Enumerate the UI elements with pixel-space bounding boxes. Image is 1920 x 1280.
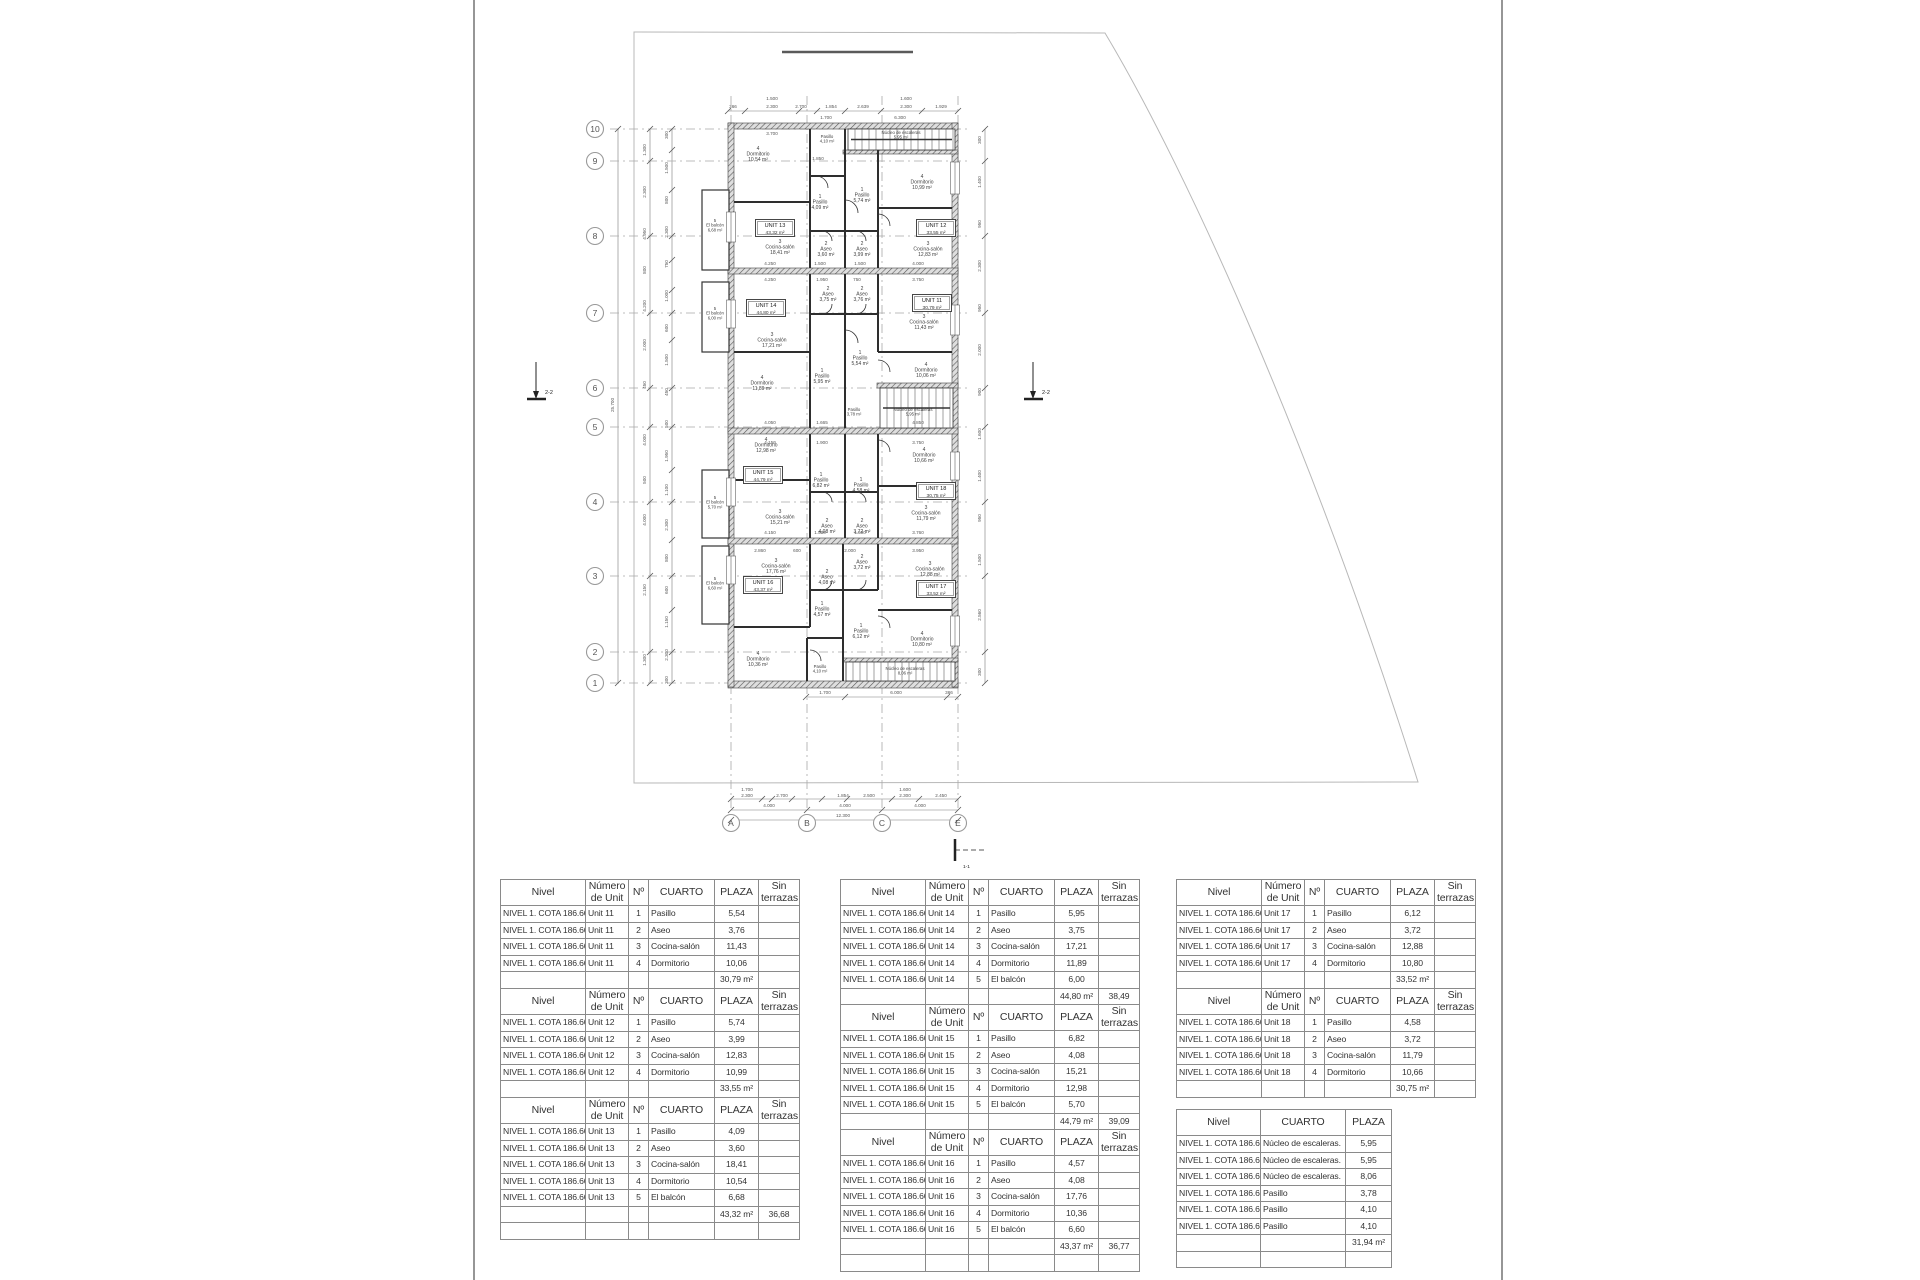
dim-label: 900 [977,388,982,396]
dim-label: 2.000 [642,339,647,351]
column-header: CUARTO [1261,1110,1346,1136]
dim-label: 2.450 [935,793,947,798]
room-label: 2Aseo4,08 m² [819,569,836,586]
section-label: 1-1 [963,864,970,870]
column-header: PLAZA [1055,880,1099,906]
grid-bubble-label: 5 [593,422,598,432]
dim-label: 950 [977,304,982,312]
table-row: NIVEL 1. COTA 186.60Unit 171Pasillo6,12 [1177,906,1476,923]
dim-label: 1.854 [837,793,849,798]
dim-label: 4.000 [763,803,775,808]
column-header: Nº [969,1005,989,1031]
table-row: NIVEL 1. COTA 186.60Unit 145El balcón6,0… [841,972,1140,989]
dim-label: 2.300 [977,260,982,272]
dim-label: 1.500 [814,261,826,266]
column-header: CUARTO [989,1130,1055,1156]
grid-bubble-label: 2 [593,647,598,657]
column-header: Nº [969,1130,989,1156]
dimension-chains [618,111,985,820]
table-row: NIVEL 1. COTA 186.60Unit 143Cocina-salón… [841,939,1140,956]
dim-label: 2.000 [977,344,982,356]
dim-label: 500 [642,476,647,484]
table-row: NIVEL 1. COTA 186.60Unit 152Aseo4,08 [841,1047,1140,1064]
unit-table-unit-18: NivelNúmero de UnitNºCUARTOPLAZASin terr… [1176,988,1476,1098]
column-header: CUARTO [649,880,715,906]
structural-grid: 10987654321ABCE [587,96,969,832]
column-header: CUARTO [649,989,715,1015]
dim-label: 950 [977,220,982,228]
dim-label: 2.000 [844,548,856,553]
dim-label: 4.150 [764,530,776,535]
room-label: 3Cocina-salón11,79 m² [911,505,940,522]
dim-label: 4.250 [764,277,776,282]
dim-label: 2.300 [766,104,778,109]
room-label: 4Dormitorio10,36 m² [746,651,769,668]
column-header: CUARTO [649,1098,715,1124]
column-header: PLAZA [715,880,759,906]
unit-tag-area: 43,37 m² [754,587,773,593]
table-row [1177,1251,1392,1268]
table-row: NIVEL 1. COTA 186.60Núcleo de escaleras.… [1177,1136,1392,1153]
table-row: NIVEL 1. COTA 186.60Unit 122Aseo3,99 [501,1031,800,1048]
column-header: Sin terrazas [759,880,800,906]
dim-label: 300 [664,131,669,139]
table-row: NIVEL 1. COTA 186.60Unit 154Dormitorio12… [841,1080,1140,1097]
dim-label: 2.639 [857,104,869,109]
room-label: 3Cocina-salón12,83 m² [913,241,942,258]
dim-label: 1.929 [935,104,947,109]
column-header: Nivel [501,989,586,1015]
column-header: CUARTO [1325,880,1391,906]
room-label: 1Pasillo5,54 m² [852,350,869,367]
room-label: 2Aseo3,72 m² [854,554,871,571]
grid-bubble-label: B [804,818,810,828]
dim-label: 450 [642,381,647,389]
column-header: CUARTO [1325,989,1391,1015]
room-label: 3Cocina-salón17,21 m² [757,332,786,349]
dim-label: 2.700 [776,793,788,798]
table-row: NIVEL 1. COTA 186.60Unit 113Cocina-salón… [501,939,800,956]
column-header: Sin terrazas [1099,880,1140,906]
dim-label: 600 [793,548,801,553]
unit-tag-name: UNIT 18 [926,486,947,492]
section-label: 2-2 [1042,390,1050,396]
room-label: 4Dormitorio10,80 m² [910,631,933,648]
room-label: 1Pasillo4,58 m² [853,477,870,494]
dim-label: 3.750 [912,440,924,445]
room-label: 2Aseo3,75 m² [820,286,837,303]
dim-label: 3.750 [912,277,924,282]
column-header: Nivel [501,1098,586,1124]
table-row: 43,32 m²36,68 [501,1206,800,1223]
dim-label: 300 [977,136,982,144]
dim-label: 3.950 [912,548,924,553]
unit-table-unit-11: NivelNúmero de UnitNºCUARTOPLAZASin terr… [500,879,800,989]
dim-label: 750 [853,277,861,282]
column-header: Nº [629,880,649,906]
dim-label: 1.150 [664,616,669,628]
dim-label: 6.000 [890,690,902,695]
column-header: Nivel [841,1130,926,1156]
dim-label: 2.500 [863,793,875,798]
column-header: PLAZA [1055,1130,1099,1156]
table-row: NIVEL 1. COTA 186.60Pasillo4,10 [1177,1202,1392,1219]
dim-label: 450 [664,388,669,396]
building [702,123,960,688]
unit-tag-name: UNIT 11 [922,298,942,304]
grid-bubble-label: C [879,818,885,828]
column-header: Nivel [1177,880,1262,906]
dim-label: 2.150 [642,584,647,596]
table-row: NIVEL 1. COTA 186.60Unit 141Pasillo5,95 [841,906,1140,923]
table-row: NIVEL 1. COTA 186.60Unit 153Cocina-salón… [841,1064,1140,1081]
column-header: Sin terrazas [1099,1130,1140,1156]
dim-label: 2.300 [900,104,912,109]
section-markers: 2-2 2-2 1-1 [527,362,1050,870]
table-row: NIVEL 1. COTA 186.60Unit 184Dormitorio10… [1177,1064,1476,1081]
dim-label: 800 [664,196,669,204]
unit-tag-area: 33,55 m² [927,230,946,236]
grid-bubble-label: 7 [593,308,598,318]
column-header: PLAZA [1055,1005,1099,1031]
dim-label: 2.860 [754,548,766,553]
unit-table-unit-17: NivelNúmero de UnitNºCUARTOPLAZASin terr… [1176,879,1476,989]
column-header: Nivel [1177,1110,1261,1136]
column-header: Nivel [841,880,926,906]
column-header: PLAZA [1391,989,1435,1015]
dim-label: 800 [642,266,647,274]
column-header: Número de Unit [1262,880,1305,906]
balconies [702,190,729,624]
table-row: NIVEL 1. COTA 186.60Unit 132Aseo3,60 [501,1140,800,1157]
dim-label: 4.000 [642,434,647,446]
room-label: 3Cocina-salón17,76 m² [761,558,790,575]
dim-label: 2.300 [664,649,669,661]
dim-label: 1.854 [825,104,837,109]
unit-table-unit-13: NivelNúmero de UnitNºCUARTOPLAZASin terr… [500,1097,800,1240]
column-header: Nº [1305,880,1325,906]
grid-bubble-label: 1 [593,678,598,688]
dim-label: 1.500 [766,96,778,101]
dim-label: 2.300 [899,793,911,798]
column-header: Número de Unit [586,989,629,1015]
room-label: 3Cocina-salón12,88 m² [915,561,944,578]
dim-label: 2.300 [664,519,669,531]
room-label: 2Aseo4,08 m² [819,518,836,535]
unit-tag-name: UNIT 13 [765,223,786,229]
column-header: Número de Unit [586,880,629,906]
dim-label: 3.700 [766,131,778,136]
table-row: NIVEL 1. COTA 186.60Unit 162Aseo4,08 [841,1172,1140,1189]
dim-label: 300 [664,676,669,684]
unit-tag-name: UNIT 15 [753,470,774,476]
dim-label: 12.300 [836,813,850,818]
dim-label: 1.600 [977,428,982,440]
grid-bubble-label: 8 [593,231,598,241]
unit-tag-name: UNIT 12 [926,223,947,229]
unit-table-unit-15: NivelNúmero de UnitNºCUARTOPLAZASin terr… [840,1004,1140,1130]
table-row: NIVEL 1. COTA 186.60Unit 133Cocina-salón… [501,1157,800,1174]
column-header: Sin terrazas [759,1098,800,1124]
dim-label: 1.500 [854,261,866,266]
room-label: 1Pasillo6,82 m² [813,472,830,489]
table-row: NIVEL 1. COTA 186.60Unit 131Pasillo4,09 [501,1124,800,1141]
room-label: 2Aseo3,99 m² [854,241,871,258]
table-row: NIVEL 1. COTA 186.60Unit 163Cocina-salón… [841,1189,1140,1206]
table-row: NIVEL 1. COTA 186.60Unit 111Pasillo5,54 [501,906,800,923]
table-row: 43,37 m²36,77 [841,1238,1140,1255]
column-header: PLAZA [715,1098,759,1124]
dim-label: 6.300 [894,115,906,120]
table-row: NIVEL 1. COTA 186.60Unit 161Pasillo4,57 [841,1156,1140,1173]
dim-label: 4.000 [914,803,926,808]
dim-label: 1.500 [977,554,982,566]
section-marker-2-2-left: 2-2 [527,362,553,399]
unit-tag-area: 44,79 m² [754,477,773,483]
column-header: Nivel [1177,989,1262,1015]
staircases [846,129,955,681]
dim-label: 1.500 [664,162,669,174]
dim-label: 1.400 [977,176,982,188]
room-label: 3Cocina-salón18,41 m² [765,239,794,256]
unit-tag-name: UNIT 16 [753,580,774,586]
dim-label: 25.700 [610,398,615,412]
table-row: NIVEL 1. COTA 186.60Unit 121Pasillo5,74 [501,1015,800,1032]
table-row [501,1223,800,1240]
dim-label: 3.760 [912,530,924,535]
room-label: Pasillo3,78 m² [847,407,862,417]
dim-label: 4.000 [642,514,647,526]
table-row: NIVEL 1. COTA 186.60Unit 165El balcón6,6… [841,1222,1140,1239]
room-label: 4Dormitorio10,66 m² [912,447,935,464]
dim-label: 1.300 [642,654,647,666]
dim-label: 4.000 [839,803,851,808]
table-row: 44,79 m²39,09 [841,1113,1140,1130]
table-row: NIVEL 1. COTA 186.60Núcleo de escaleras.… [1177,1152,1392,1169]
table-row: NIVEL 1. COTA 186.60Unit 135El balcón6,6… [501,1190,800,1207]
dim-label: 1.700 [741,787,753,792]
unit-table-unit-16: NivelNúmero de UnitNºCUARTOPLAZASin terr… [840,1129,1140,1272]
table-row: NIVEL 1. COTA 186.60Pasillo3,78 [1177,1185,1392,1202]
room-label: 1Pasillo5,95 m² [814,368,831,385]
table-row: NIVEL 1. COTA 186.60Unit 172Aseo3,72 [1177,922,1476,939]
column-header: PLAZA [715,989,759,1015]
column-header: Nivel [501,880,586,906]
column-header: Número de Unit [926,1130,969,1156]
column-header: Número de Unit [586,1098,629,1124]
room-label: 1Pasillo6,12 m² [853,623,870,640]
table-row: NIVEL 1. COTA 186.60Unit 181Pasillo4,58 [1177,1015,1476,1032]
grid-bubble-label: 10 [590,124,600,134]
section-marker-1-1-bottom: 1-1 [955,839,985,870]
grid-bubble-label: 3 [593,571,598,581]
dim-label: 4.850 [912,420,924,425]
dim-label: 600 [664,324,669,332]
dim-label: 300 [977,668,982,676]
column-header: Sin terrazas [759,989,800,1015]
dim-label: 4.250 [764,261,776,266]
grid-bubble-label: 9 [593,156,598,166]
room-label: Pasillo4,10 m² [813,664,828,674]
dim-label: 4.050 [764,420,776,425]
column-header: Número de Unit [926,880,969,906]
unit-tag-area: 43,32 m² [766,230,785,236]
table-row: NIVEL 1. COTA 186.60Pasillo4,10 [1177,1218,1392,1235]
column-header: Nº [629,989,649,1015]
room-label: 3Cocina-salón15,21 m² [765,509,794,526]
dim-label: 750 [664,260,669,268]
room-label: 1Pasillo4,57 m² [814,601,831,618]
dim-label: 4.200 [642,300,647,312]
room-label: 2Aseo3,72 m² [854,518,871,535]
unit-tag-name: UNIT 14 [756,303,777,309]
table-row: NIVEL 1. COTA 186.60Unit 183Cocina-salón… [1177,1048,1476,1065]
table-row: 31,94 m² [1177,1235,1392,1252]
room-label: 1Pasillo4,09 m² [812,194,829,211]
dim-label: 2.560 [977,609,982,621]
table-row: NIVEL 1. COTA 186.60Unit 123Cocina-salón… [501,1048,800,1065]
table-row: NIVEL 1. COTA 186.60Unit 174Dormitorio10… [1177,955,1476,972]
dim-label: 600 [664,586,669,594]
dim-label: 800 [664,554,669,562]
dim-label: 2.300 [642,186,647,198]
column-header: Sin terrazas [1099,1005,1140,1031]
room-label: 3Cocina-salón11,43 m² [909,314,938,331]
column-header: CUARTO [989,1005,1055,1031]
column-header: PLAZA [1346,1110,1392,1136]
dim-label: 1.950 [816,277,828,282]
room-label: 4Dormitorio10,99 m² [910,174,933,191]
dim-label: 1.100 [664,484,669,496]
grid-bubble-label: 4 [593,497,598,507]
dim-label: 4.000 [912,261,924,266]
dim-label: 4.950 [642,228,647,240]
table-row: 30,79 m² [501,972,800,989]
column-header: CUARTO [989,880,1055,906]
dim-label: 1.900 [816,440,828,445]
column-header: Sin terrazas [1435,989,1476,1015]
dim-label: 1.500 [664,354,669,366]
unit-tag-area: 30,79 m² [923,305,942,311]
site-boundary [634,32,1418,783]
dim-label: 1.950 [664,450,669,462]
room-label: 2Aseo3,76 m² [854,286,871,303]
table-row: NIVEL 1. COTA 186.60Unit 142Aseo3,75 [841,922,1140,939]
dim-label: 1.600 [900,96,912,101]
dim-label: 950 [977,514,982,522]
dim-label: 1.700 [820,115,832,120]
unit-tag-name: UNIT 17 [926,584,947,590]
unit-table-unit-14: NivelNúmero de UnitNºCUARTOPLAZASin terr… [840,879,1140,1005]
table-row: NIVEL 1. COTA 186.60Unit 164Dormitorio10… [841,1205,1140,1222]
room-label: 4Dormitorio10,06 m² [914,362,937,379]
table-row: NIVEL 1. COTA 186.60Unit 151Pasillo6,82 [841,1031,1140,1048]
table-row: NIVEL 1. COTA 186.60Núcleo de escaleras.… [1177,1169,1392,1186]
table-row: NIVEL 1. COTA 186.60Unit 155El balcón5,7… [841,1097,1140,1114]
table-row: 44,80 m²38,49 [841,988,1140,1005]
column-header: Sin terrazas [1435,880,1476,906]
drawing-sheet: 10987654321ABCE [0,0,1920,1280]
room-label: 1Pasillo5,74 m² [854,187,871,204]
dim-label: 1.665 [816,420,828,425]
table-row: NIVEL 1. COTA 186.60Unit 173Cocina-salón… [1177,939,1476,956]
table-row [841,1255,1140,1272]
dim-label: 1.300 [642,144,647,156]
column-header: Número de Unit [1262,989,1305,1015]
table-row: 33,55 m² [501,1081,800,1098]
dim-label: 1.600 [899,787,911,792]
column-header: PLAZA [1391,880,1435,906]
dim-label: 2.300 [741,793,753,798]
dim-label: 1.400 [977,470,982,482]
table-row: 33,52 m² [1177,972,1476,989]
unit-tag-area: 44,80 m² [757,310,776,316]
column-header: Nº [629,1098,649,1124]
room-label: Pasillo4,10 m² [820,134,835,144]
table-row: 30,75 m² [1177,1081,1476,1098]
dim-label: 1.000 [664,290,669,302]
column-header: Nº [969,880,989,906]
table-row: NIVEL 1. COTA 186.60Unit 114Dormitorio10… [501,955,800,972]
dim-label: 1.700 [819,690,831,695]
unit-table-unit-12: NivelNúmero de UnitNºCUARTOPLAZASin terr… [500,988,800,1098]
unit-tag-area: 30,75 m² [927,493,946,499]
dim-label: 500 [664,420,669,428]
room-label: 4Dormitorio10,54 m² [746,146,769,163]
room-label: 2Aseo3,60 m² [818,241,835,258]
section-label: 2-2 [545,390,553,396]
column-header: Nº [1305,989,1325,1015]
table-row: NIVEL 1. COTA 186.60Unit 134Dormitorio10… [501,1173,800,1190]
dim-label: 1.850 [812,156,824,161]
column-header: Nivel [841,1005,926,1031]
unit-tag-area: 33,52 m² [927,591,946,597]
table-row: NIVEL 1. COTA 186.60Unit 144Dormitorio11… [841,955,1140,972]
table-row: NIVEL 1. COTA 186.60Unit 124Dormitorio10… [501,1064,800,1081]
table-row: NIVEL 1. COTA 186.60Unit 182Aseo3,72 [1177,1031,1476,1048]
room-label: 4Dormitorio11,89 m² [750,375,773,392]
column-header: Número de Unit [926,1005,969,1031]
common-areas-table: NivelCUARTOPLAZANIVEL 1. COTA 186.60Núcl… [1176,1109,1392,1268]
table-row: NIVEL 1. COTA 186.60Unit 112Aseo3,76 [501,922,800,939]
dim-label: 2.300 [664,226,669,238]
grid-bubble-label: 6 [593,383,598,393]
section-marker-2-2-right: 2-2 [1024,362,1050,399]
